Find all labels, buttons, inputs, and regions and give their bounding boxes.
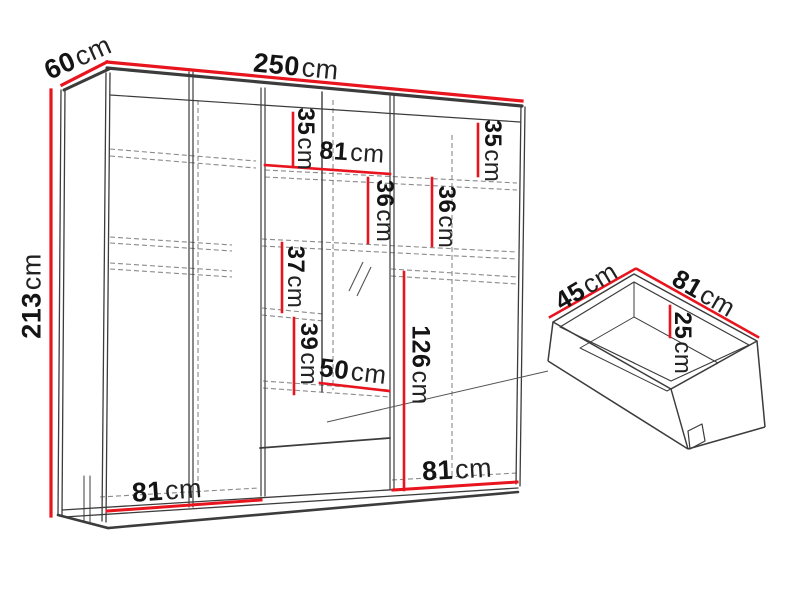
dim-unit: cm	[349, 356, 388, 390]
dim-drawer-zone-50: 50cm	[318, 354, 388, 388]
dim-value: 37	[282, 246, 309, 274]
dim-value: 126	[407, 325, 435, 368]
dim-drawer-height-25: 25cm	[670, 312, 694, 375]
dim-unit: cm	[669, 341, 696, 374]
dim-value: 250	[252, 48, 301, 82]
dim-bottom-right-81: 81cm	[421, 455, 492, 486]
dim-value: 81	[421, 455, 454, 487]
dim-unit: cm	[282, 275, 309, 308]
dim-value: 35	[292, 108, 319, 136]
dim-mid-top-35: 35cm	[293, 108, 317, 171]
dim-bottom-left-81: 81cm	[131, 475, 203, 507]
dim-value: 50	[318, 352, 351, 385]
dim-mid-shelf-81: 81cm	[319, 138, 386, 167]
mirror-hatch	[349, 262, 371, 296]
dim-value: 36	[433, 186, 460, 214]
dim-unit: cm	[164, 473, 203, 506]
dim-height-213: 213cm	[19, 253, 46, 339]
dim-unit: cm	[300, 52, 340, 85]
dim-value: 35	[479, 120, 506, 148]
dim-right-top-35: 35cm	[480, 120, 504, 183]
dim-mid-gap-39: 39cm	[296, 323, 320, 386]
dim-unit: cm	[479, 149, 506, 182]
dim-unit: cm	[349, 138, 385, 168]
wardrobe-dimension-diagram: 250cm 60cm 213cm 35cm 81cm 36cm 35cm 36c…	[0, 0, 800, 600]
dim-unit: cm	[433, 215, 460, 248]
dim-unit: cm	[17, 253, 47, 290]
dim-unit: cm	[292, 137, 319, 170]
dim-value: 81	[319, 136, 350, 166]
dim-unit: cm	[371, 209, 398, 242]
dim-value: 36	[371, 180, 398, 208]
dim-value: 39	[295, 323, 322, 351]
dim-right-gap-36: 36cm	[434, 186, 458, 249]
dim-unit: cm	[454, 453, 493, 485]
diagram-canvas	[0, 0, 800, 600]
dim-value: 25	[669, 312, 696, 340]
dim-mid-gap-37: 37cm	[283, 246, 307, 309]
dim-mid-gap-36: 36cm	[372, 180, 396, 243]
dim-value: 213	[17, 292, 47, 339]
dim-unit: cm	[407, 370, 435, 404]
dim-value: 81	[131, 476, 164, 508]
dimension-lines	[51, 62, 758, 516]
dim-right-hang-126: 126cm	[408, 325, 433, 405]
